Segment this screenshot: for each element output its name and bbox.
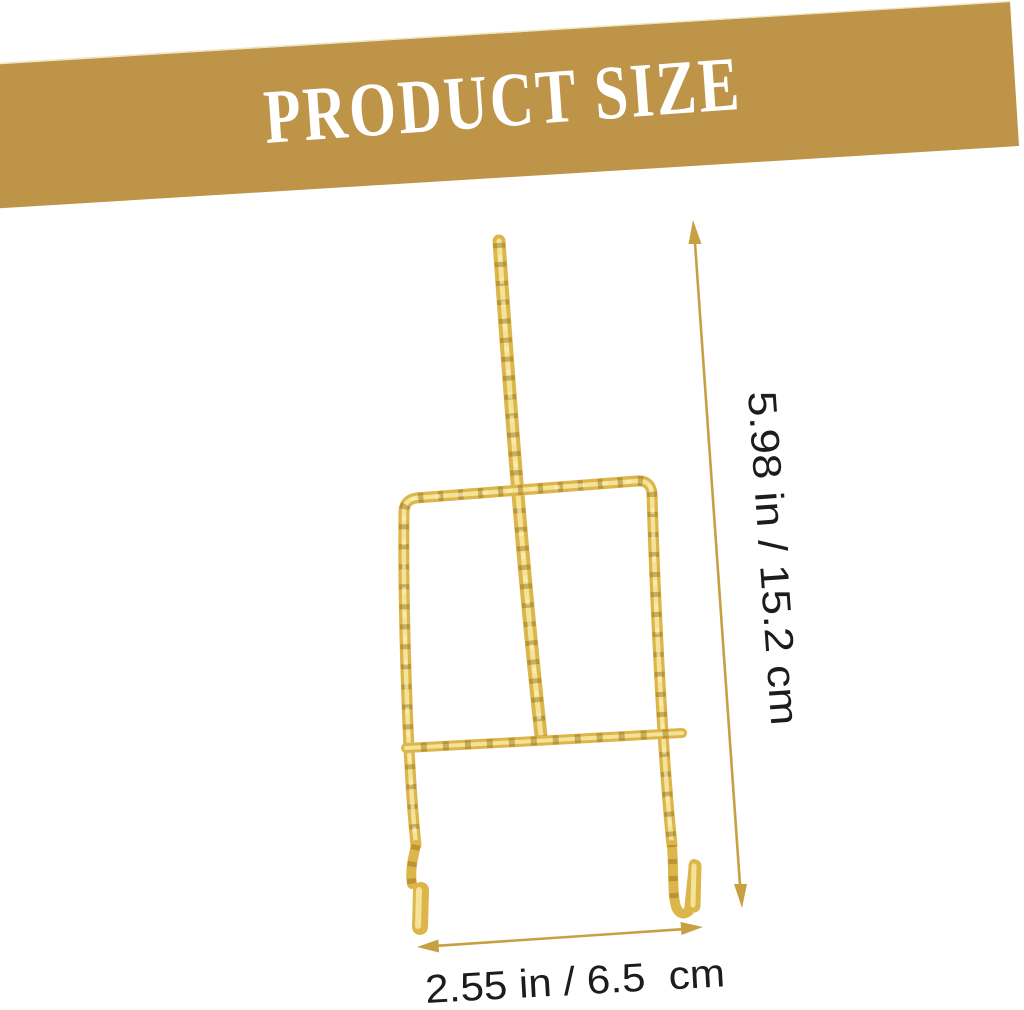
diagram-canvas: PRODUCT SIZE	[0, 0, 1024, 1010]
arrow-down-icon	[734, 884, 747, 908]
stand-left-hook	[411, 845, 421, 927]
arrow-right-icon	[681, 922, 703, 935]
product-size-diagram: PRODUCT SIZE	[0, 0, 1024, 1010]
arrow-left-icon	[417, 940, 439, 953]
stand-right-hook	[672, 845, 695, 914]
height-dimension-arrow: 5.98 in / 15.2 cm	[689, 220, 807, 908]
width-dimension-label: 2.55 in / 6.5 cm	[424, 951, 726, 1010]
banner: PRODUCT SIZE	[0, 2, 1019, 210]
width-dimension-arrow: 2.55 in / 6.5 cm	[417, 922, 726, 1010]
arrow-up-icon	[689, 220, 702, 244]
height-dimension-label: 5.98 in / 15.2 cm	[739, 390, 806, 727]
display-stand-product-photo	[404, 241, 695, 927]
width-arrow-line	[437, 929, 683, 946]
height-arrow-line	[695, 243, 740, 885]
